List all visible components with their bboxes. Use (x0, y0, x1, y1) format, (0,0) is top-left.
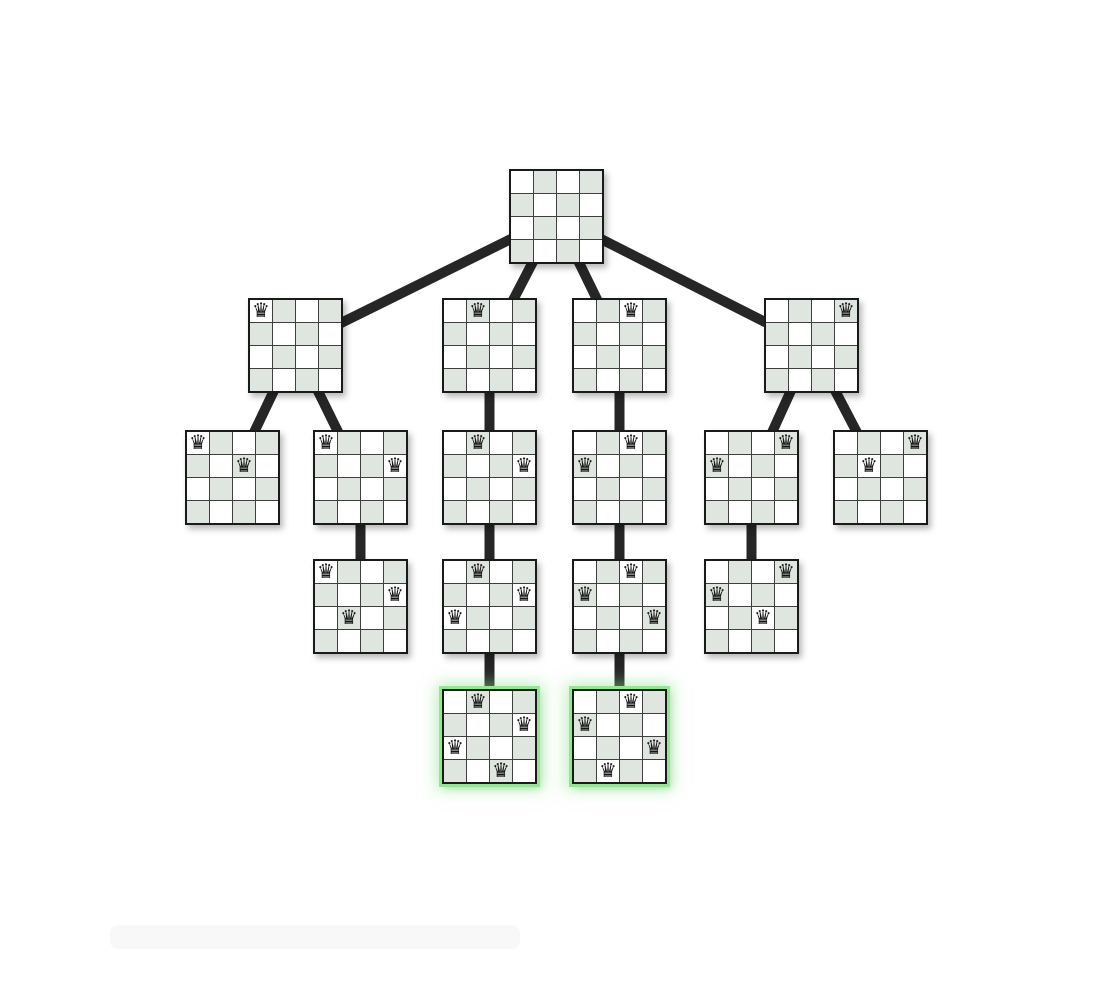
board-cell (490, 323, 512, 345)
board-cell: ♛ (187, 432, 209, 454)
board-cell (620, 607, 642, 629)
queen-icon: ♛ (515, 455, 533, 475)
board-cell: ♛ (315, 432, 337, 454)
board-cell (444, 501, 466, 523)
board-cell (643, 691, 665, 713)
queen-icon: ♛ (469, 432, 487, 452)
board-cell: ♛ (597, 760, 619, 782)
board-cell (729, 561, 751, 583)
board-cell (250, 323, 272, 345)
board-cell (384, 630, 406, 652)
board-cell (835, 323, 857, 345)
board-cell: ♛ (384, 455, 406, 477)
board-cell (775, 607, 797, 629)
board-cell (706, 501, 728, 523)
board-root (509, 169, 604, 264)
queen-icon: ♛ (469, 561, 487, 581)
board-cell (574, 630, 596, 652)
board-cell (643, 478, 665, 500)
board-cell (574, 691, 596, 713)
board-cell: ♛ (620, 691, 642, 713)
board-cell (620, 478, 642, 500)
board-cell (319, 346, 341, 368)
board-cell (511, 217, 533, 239)
board-cell (775, 630, 797, 652)
board-cell (534, 194, 556, 216)
board-b3: ♛♛ (442, 430, 537, 525)
board-cell (187, 501, 209, 523)
board-b2: ♛♛ (313, 430, 408, 525)
board-cell (729, 432, 751, 454)
queen-icon: ♛ (340, 607, 358, 627)
board-cell (513, 760, 535, 782)
queen-icon: ♛ (235, 455, 253, 475)
board-cell (315, 478, 337, 500)
board-cell (513, 737, 535, 759)
board-cell (490, 478, 512, 500)
board-cell (444, 369, 466, 391)
board-cell (273, 323, 295, 345)
board-cell (296, 346, 318, 368)
board-cell (444, 432, 466, 454)
board-cell (444, 346, 466, 368)
board-cell (296, 369, 318, 391)
board-cell (467, 714, 489, 736)
board-cell (315, 584, 337, 606)
board-cell (338, 561, 360, 583)
queen-icon: ♛ (906, 432, 924, 452)
board-cell (620, 584, 642, 606)
board-cell: ♛ (706, 455, 728, 477)
board-cell (620, 630, 642, 652)
queen-icon: ♛ (576, 584, 594, 604)
board-cell (643, 455, 665, 477)
queen-icon: ♛ (576, 455, 594, 475)
board-cell (574, 369, 596, 391)
board-cell (881, 501, 903, 523)
board-cell: ♛ (858, 455, 880, 477)
board-cell (881, 478, 903, 500)
board-cell (574, 300, 596, 322)
board-cell: ♛ (490, 760, 512, 782)
board-cell (557, 194, 579, 216)
search-tree-canvas: ♛♛♛♛♛♛♛♛♛♛♛♛♛♛♛♛♛♛♛♛♛♛♛♛♛♛♛♛♛♛♛♛♛♛♛♛ (0, 0, 1118, 992)
board-cell (812, 323, 834, 345)
board-cell (752, 561, 774, 583)
board-cell (729, 478, 751, 500)
board-cell (187, 478, 209, 500)
board-cell (752, 455, 774, 477)
board-cell (580, 194, 602, 216)
board-cell (729, 584, 751, 606)
board-cell (534, 240, 556, 262)
board-cell (490, 369, 512, 391)
board-cell (835, 478, 857, 500)
board-cell (490, 561, 512, 583)
board-cell (812, 346, 834, 368)
queen-icon: ♛ (837, 300, 855, 320)
board-cell (490, 714, 512, 736)
board-cell (361, 630, 383, 652)
queen-icon: ♛ (189, 432, 207, 452)
board-cell (574, 607, 596, 629)
board-cell (881, 432, 903, 454)
queen-icon: ♛ (386, 584, 404, 604)
board-cell: ♛ (904, 432, 926, 454)
board-cell (513, 478, 535, 500)
board-cell: ♛ (574, 584, 596, 606)
tree-edge-layer (0, 0, 1118, 992)
board-cell (597, 478, 619, 500)
queen-icon: ♛ (317, 561, 335, 581)
board-cell (467, 323, 489, 345)
board-cell (467, 501, 489, 523)
board-cell (338, 455, 360, 477)
board-cell (775, 501, 797, 523)
board-cell: ♛ (250, 300, 272, 322)
board-a1: ♛ (248, 298, 343, 393)
board-cell (296, 300, 318, 322)
board-cell (904, 501, 926, 523)
board-cell (187, 455, 209, 477)
board-cell (858, 478, 880, 500)
queen-icon: ♛ (777, 561, 795, 581)
board-cell (597, 691, 619, 713)
board-cell (597, 300, 619, 322)
board-cell (384, 432, 406, 454)
board-cell: ♛ (620, 300, 642, 322)
board-b1: ♛♛ (185, 430, 280, 525)
board-cell (319, 300, 341, 322)
board-cell (620, 737, 642, 759)
queen-icon: ♛ (446, 737, 464, 757)
board-cell (574, 760, 596, 782)
board-cell (835, 369, 857, 391)
board-cell (643, 369, 665, 391)
board-cell (256, 501, 278, 523)
board-cell (620, 369, 642, 391)
board-cell (597, 501, 619, 523)
board-a4: ♛ (764, 298, 859, 393)
board-cell: ♛ (513, 584, 535, 606)
queen-icon: ♛ (622, 300, 640, 320)
board-cell (643, 323, 665, 345)
board-cell (384, 501, 406, 523)
board-cell (513, 323, 535, 345)
board-cell (210, 455, 232, 477)
board-cell (444, 455, 466, 477)
queen-icon: ♛ (622, 691, 640, 711)
board-cell (319, 323, 341, 345)
board-cell (574, 561, 596, 583)
board-cell (361, 432, 383, 454)
board-cell (444, 714, 466, 736)
board-cell: ♛ (467, 432, 489, 454)
board-cell (620, 501, 642, 523)
queen-icon: ♛ (622, 561, 640, 581)
board-cell (766, 369, 788, 391)
board-cell: ♛ (384, 584, 406, 606)
board-cell (444, 561, 466, 583)
board-cell (597, 630, 619, 652)
queen-icon: ♛ (469, 691, 487, 711)
board-cell (490, 346, 512, 368)
board-b5: ♛♛ (704, 430, 799, 525)
board-cell (338, 630, 360, 652)
board-cell: ♛ (338, 607, 360, 629)
board-cell (444, 760, 466, 782)
board-cell (513, 561, 535, 583)
board-cell (513, 432, 535, 454)
board-cell: ♛ (444, 607, 466, 629)
board-cell (775, 455, 797, 477)
board-cell (467, 607, 489, 629)
board-cell (513, 300, 535, 322)
board-cell (490, 432, 512, 454)
board-cell (643, 760, 665, 782)
board-cell (643, 714, 665, 736)
board-cell (706, 607, 728, 629)
board-cell (273, 369, 295, 391)
board-cell (835, 455, 857, 477)
queen-icon: ♛ (777, 432, 795, 452)
board-cell (490, 455, 512, 477)
board-cell (812, 300, 834, 322)
board-cell (511, 171, 533, 193)
board-cell (706, 561, 728, 583)
board-cell (858, 501, 880, 523)
board-cell: ♛ (775, 432, 797, 454)
board-cell (643, 432, 665, 454)
board-cell: ♛ (574, 455, 596, 477)
board-cell (643, 561, 665, 583)
board-cell (597, 584, 619, 606)
board-cell: ♛ (775, 561, 797, 583)
board-cell (250, 369, 272, 391)
solution-board-d1: ♛♛♛♛ (442, 689, 537, 784)
board-cell (597, 455, 619, 477)
board-cell (467, 737, 489, 759)
board-cell (361, 607, 383, 629)
board-cell (233, 432, 255, 454)
board-cell (643, 346, 665, 368)
board-cell (490, 607, 512, 629)
board-cell (490, 501, 512, 523)
board-cell (361, 584, 383, 606)
board-cell (490, 300, 512, 322)
board-cell: ♛ (513, 714, 535, 736)
board-cell (490, 737, 512, 759)
board-cell (490, 691, 512, 713)
board-cell (467, 369, 489, 391)
queen-icon: ♛ (515, 584, 533, 604)
board-cell (597, 561, 619, 583)
board-cell (706, 478, 728, 500)
board-cell (580, 217, 602, 239)
board-cell (835, 501, 857, 523)
board-cell (513, 501, 535, 523)
board-cell (513, 369, 535, 391)
board-cell: ♛ (752, 607, 774, 629)
board-cell (490, 630, 512, 652)
board-cell (597, 432, 619, 454)
board-cell (643, 501, 665, 523)
board-cell (444, 630, 466, 652)
board-cell (597, 346, 619, 368)
board-cell (620, 323, 642, 345)
board-cell (643, 630, 665, 652)
board-cell (384, 561, 406, 583)
board-cell (210, 432, 232, 454)
board-cell (467, 346, 489, 368)
board-cell (835, 432, 857, 454)
board-cell (729, 455, 751, 477)
board-cell (775, 584, 797, 606)
board-cell: ♛ (620, 561, 642, 583)
board-cell (467, 760, 489, 782)
queen-icon: ♛ (645, 737, 663, 757)
board-cell (250, 346, 272, 368)
board-cell: ♛ (706, 584, 728, 606)
queen-icon: ♛ (622, 432, 640, 452)
board-cell (597, 737, 619, 759)
board-cell (256, 432, 278, 454)
board-cell (233, 478, 255, 500)
board-cell (338, 478, 360, 500)
board-cell (557, 171, 579, 193)
board-cell (338, 432, 360, 454)
board-c4: ♛♛♛ (704, 559, 799, 654)
board-cell (557, 240, 579, 262)
board-cell (361, 455, 383, 477)
board-cell (574, 346, 596, 368)
board-cell (315, 501, 337, 523)
board-cell (557, 217, 579, 239)
board-cell (534, 171, 556, 193)
board-cell (315, 607, 337, 629)
board-cell (574, 737, 596, 759)
board-cell (766, 323, 788, 345)
board-cell (706, 432, 728, 454)
queen-icon: ♛ (386, 455, 404, 475)
board-cell (580, 240, 602, 262)
board-cell (752, 478, 774, 500)
board-cell (444, 691, 466, 713)
board-cell (620, 760, 642, 782)
board-cell (752, 432, 774, 454)
board-cell (513, 346, 535, 368)
board-b6: ♛♛ (833, 430, 928, 525)
queen-icon: ♛ (492, 760, 510, 780)
queen-icon: ♛ (469, 300, 487, 320)
board-cell (467, 455, 489, 477)
board-cell (789, 300, 811, 322)
board-cell (574, 323, 596, 345)
board-cell (597, 369, 619, 391)
board-cell (729, 607, 751, 629)
board-cell (752, 501, 774, 523)
board-cell (752, 630, 774, 652)
board-cell (361, 561, 383, 583)
board-cell (789, 323, 811, 345)
board-cell (580, 171, 602, 193)
queen-icon: ♛ (708, 455, 726, 475)
board-cell (904, 455, 926, 477)
board-cell (729, 630, 751, 652)
board-cell (835, 346, 857, 368)
board-c3: ♛♛♛ (572, 559, 667, 654)
board-cell (315, 630, 337, 652)
board-cell (881, 455, 903, 477)
board-cell (338, 501, 360, 523)
solution-board-d2: ♛♛♛♛ (572, 689, 667, 784)
board-cell (444, 478, 466, 500)
board-cell (338, 584, 360, 606)
queen-icon: ♛ (754, 607, 772, 627)
board-cell: ♛ (467, 300, 489, 322)
board-cell (643, 300, 665, 322)
board-cell: ♛ (444, 737, 466, 759)
board-cell (706, 630, 728, 652)
board-cell: ♛ (643, 737, 665, 759)
board-cell: ♛ (233, 455, 255, 477)
queen-icon: ♛ (708, 584, 726, 604)
queen-icon: ♛ (645, 607, 663, 627)
board-cell (467, 478, 489, 500)
board-cell: ♛ (467, 561, 489, 583)
board-cell (296, 323, 318, 345)
board-cell (361, 478, 383, 500)
board-cell: ♛ (835, 300, 857, 322)
board-cell: ♛ (467, 691, 489, 713)
board-cell (384, 478, 406, 500)
board-cell: ♛ (643, 607, 665, 629)
board-cell (620, 455, 642, 477)
board-cell (319, 369, 341, 391)
queen-icon: ♛ (599, 760, 617, 780)
board-cell (273, 300, 295, 322)
board-cell (361, 501, 383, 523)
board-cell (210, 501, 232, 523)
board-cell (513, 607, 535, 629)
board-cell (597, 607, 619, 629)
board-cell (574, 432, 596, 454)
board-cell (467, 630, 489, 652)
queen-icon: ♛ (576, 714, 594, 734)
board-cell (643, 584, 665, 606)
board-cell: ♛ (513, 455, 535, 477)
board-cell (766, 300, 788, 322)
board-cell (511, 240, 533, 262)
board-cell: ♛ (315, 561, 337, 583)
board-cell (513, 691, 535, 713)
queen-icon: ♛ (860, 455, 878, 475)
board-cell (444, 584, 466, 606)
board-cell (256, 478, 278, 500)
board-cell (729, 501, 751, 523)
board-cell (904, 478, 926, 500)
board-cell (766, 346, 788, 368)
board-cell: ♛ (574, 714, 596, 736)
board-cell (210, 478, 232, 500)
board-cell (775, 478, 797, 500)
board-cell (597, 714, 619, 736)
board-cell (513, 630, 535, 652)
board-cell (534, 217, 556, 239)
board-c2: ♛♛♛ (442, 559, 537, 654)
board-cell (315, 455, 337, 477)
board-cell (384, 607, 406, 629)
